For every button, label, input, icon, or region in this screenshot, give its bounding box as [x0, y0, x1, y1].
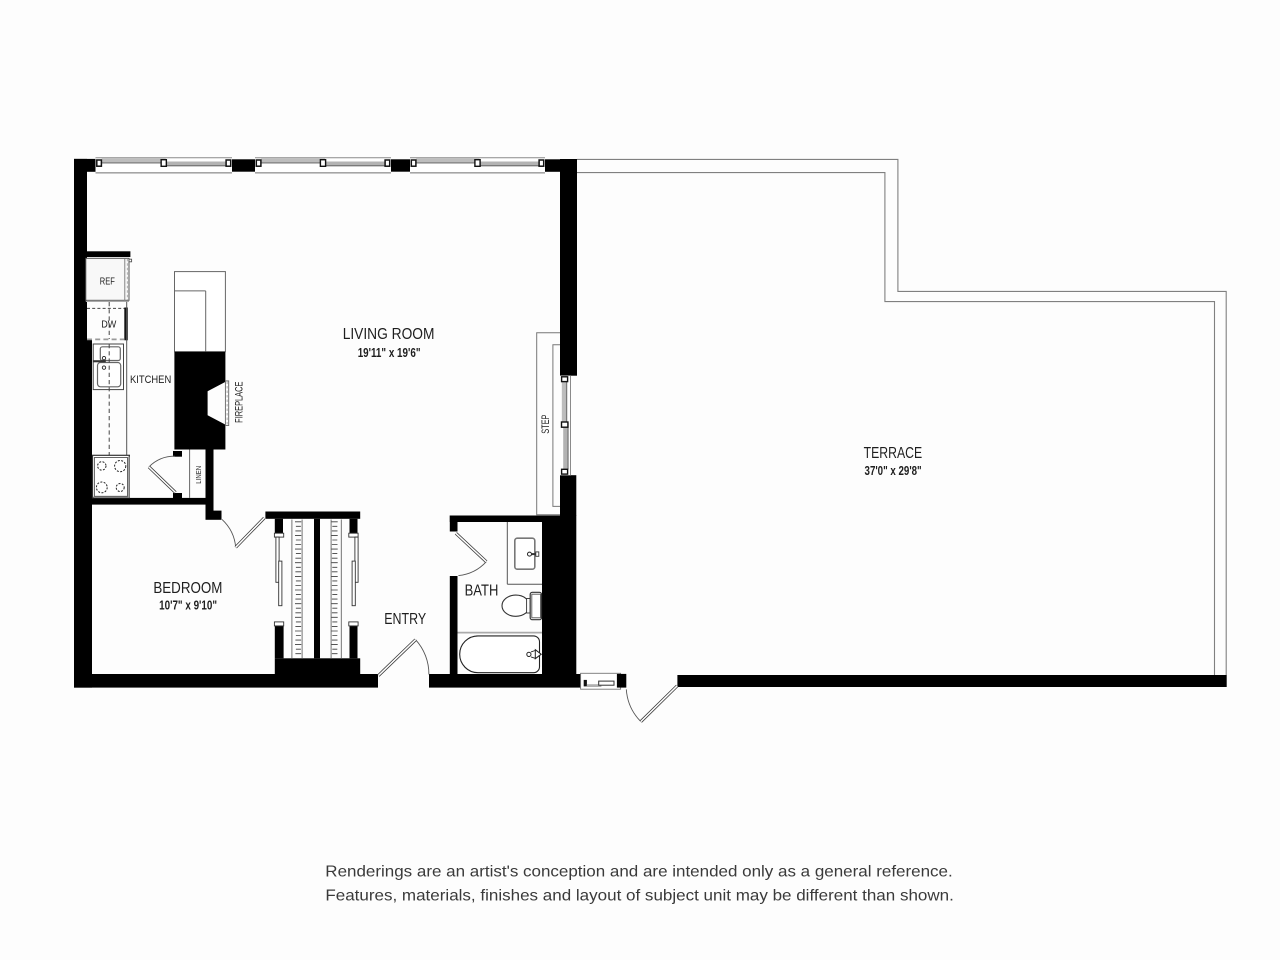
svg-text:LIVING ROOM: LIVING ROOM: [343, 326, 435, 343]
svg-text:BATH: BATH: [465, 582, 499, 599]
svg-text:BEDROOM: BEDROOM: [153, 580, 222, 597]
svg-text:ENTRY: ENTRY: [384, 611, 426, 628]
svg-text:19'11" x 19'6": 19'11" x 19'6": [358, 345, 421, 360]
svg-text:Renderings are an artist's con: Renderings are an artist's conception an…: [325, 863, 952, 880]
svg-text:TERRACE: TERRACE: [864, 445, 923, 462]
svg-text:FIREPLACE: FIREPLACE: [234, 382, 246, 423]
svg-text:STEP: STEP: [540, 415, 552, 434]
svg-text:LINEN: LINEN: [194, 466, 203, 484]
svg-text:10'7" x 9'10": 10'7" x 9'10": [159, 598, 217, 613]
svg-text:KITCHEN: KITCHEN: [130, 374, 171, 386]
svg-text:REF: REF: [100, 277, 115, 288]
svg-text:Features, materials, finishes: Features, materials, finishes and layout…: [325, 888, 954, 905]
svg-text:37'0" x 29'8": 37'0" x 29'8": [865, 463, 922, 478]
